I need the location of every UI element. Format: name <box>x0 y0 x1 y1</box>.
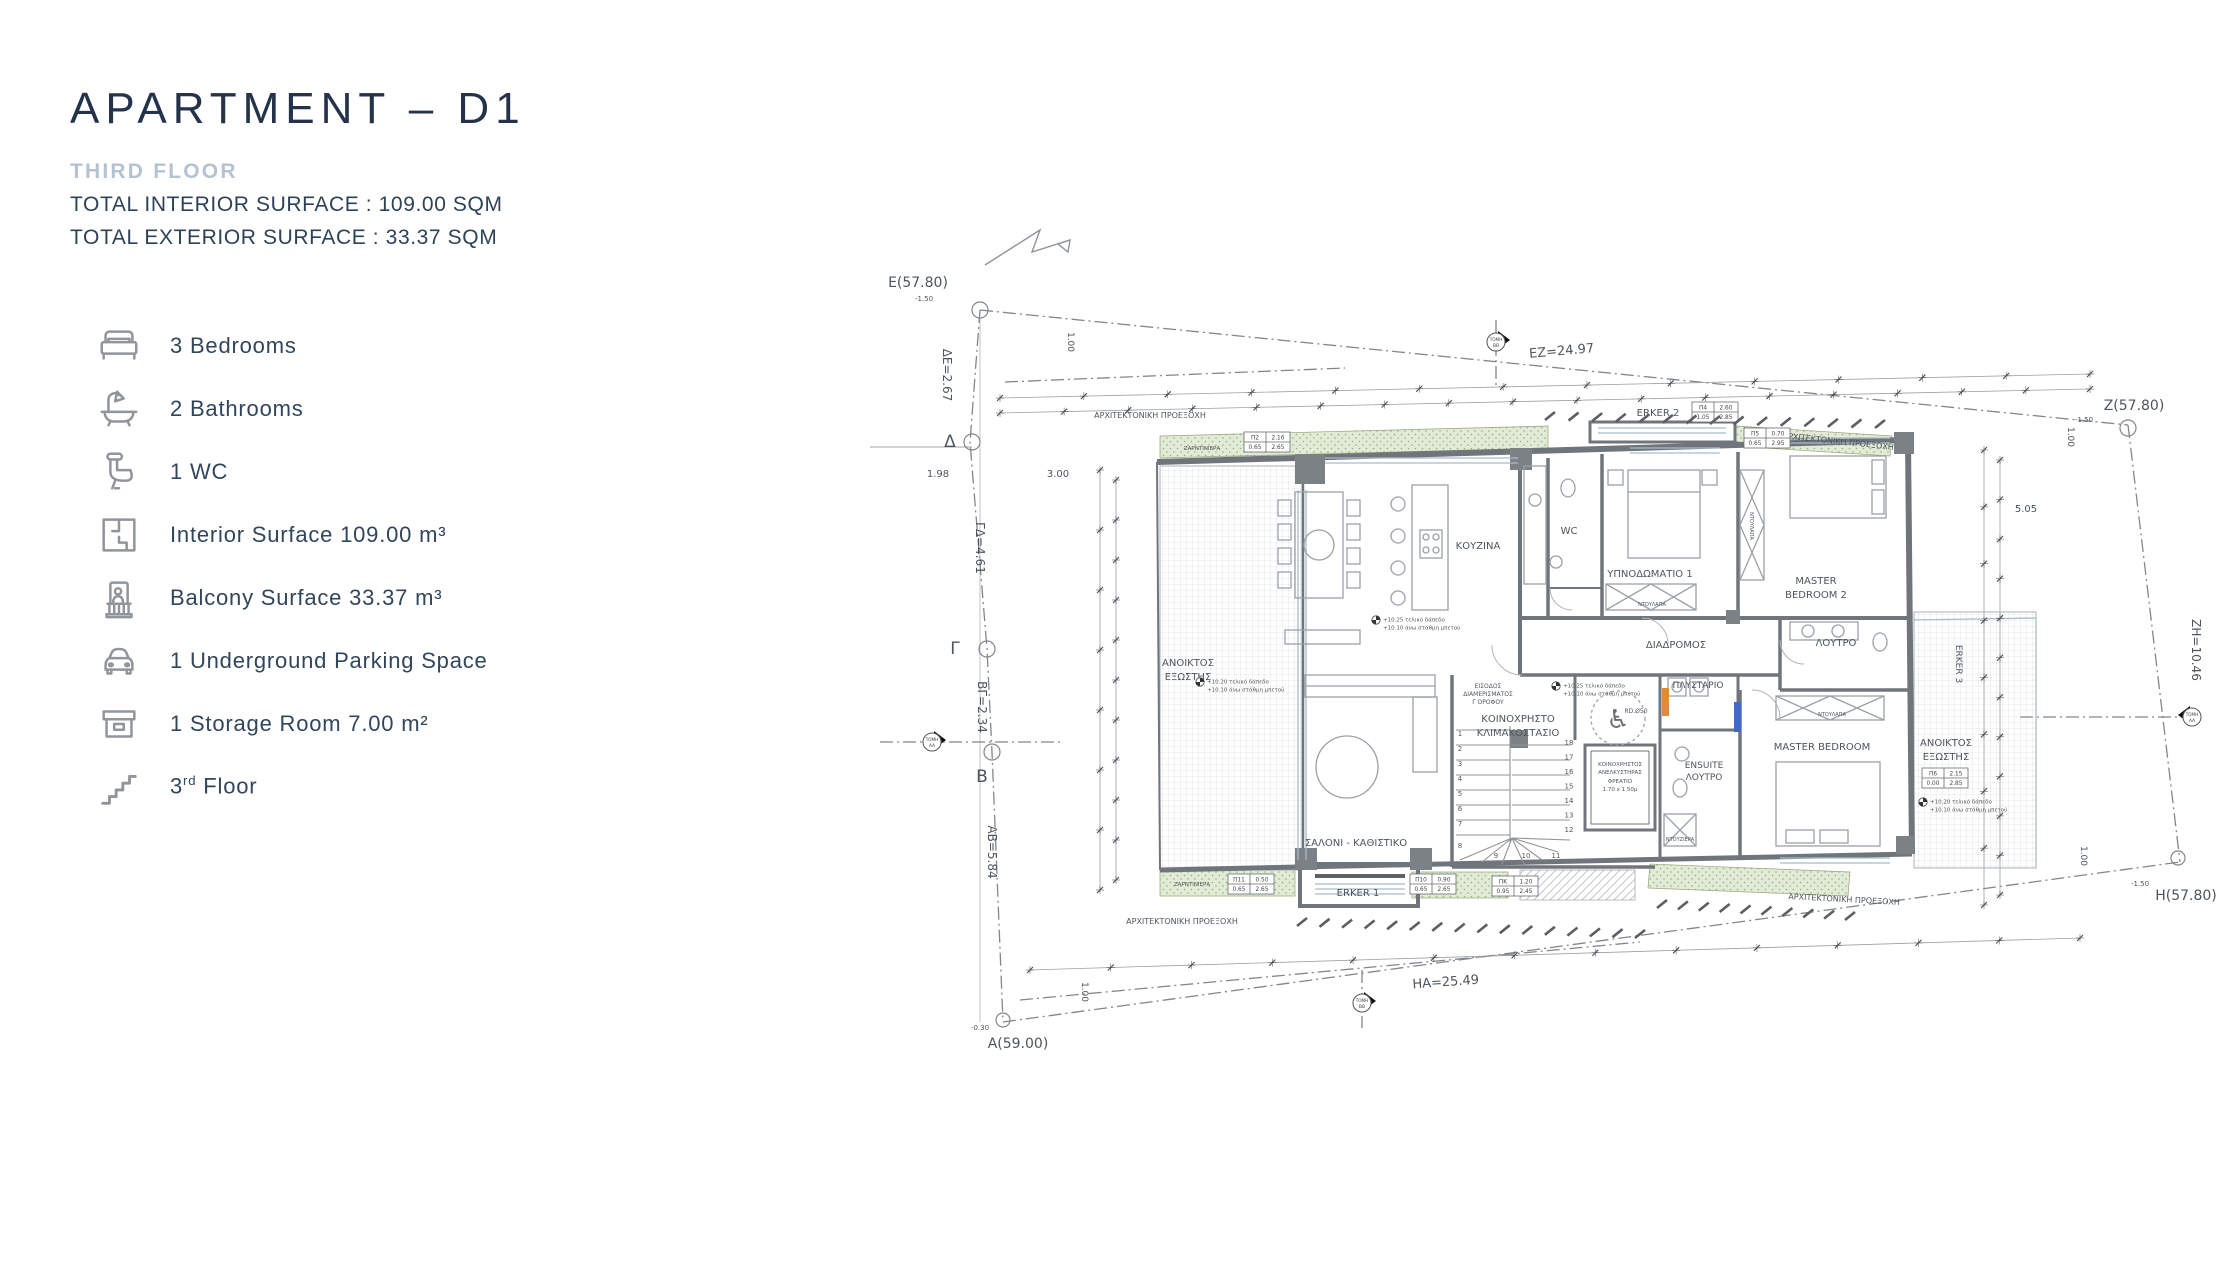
plan-label: ΦΡΕΑΤΙΟ <box>1608 779 1633 785</box>
plan-chip-value: 0.65 <box>1249 445 1262 451</box>
plan-chip-value: Π2 <box>1251 436 1259 442</box>
balcony-icon <box>96 575 142 621</box>
furniture <box>1278 456 1887 846</box>
plan-chip: Π50.700.652.95 <box>1744 428 1790 448</box>
plan-label: ΒΓ=2.34 <box>975 681 989 733</box>
section-marker: ΤΟΜΗΑΑ <box>2178 706 2201 726</box>
section-marker: ΤΟΜΗΑΑ <box>923 731 946 751</box>
stair-number: 3 <box>1458 760 1462 768</box>
feature-bathrooms: 2 Bathrooms <box>70 377 650 440</box>
plan-chip-value: Π10 <box>1415 878 1427 884</box>
plan-label: ZH=10.46 <box>2189 619 2203 681</box>
plan-label: Β <box>976 767 988 787</box>
feature-label: 3rd Floor <box>170 773 257 799</box>
plan-label: ΕΙΣΟΔΟΣ <box>1475 683 1502 690</box>
plan-chip-value: 1.20 <box>1520 880 1533 886</box>
plan-chip-value: 2.65 <box>1272 445 1285 451</box>
section-marker-text: ΒΒ <box>1359 1004 1365 1010</box>
stair-number: 9 <box>1494 852 1498 860</box>
plan-label: E(57.80) <box>888 275 948 291</box>
level-annotation: +10.25 τελικό δάπεδο+10.10 άνω στάθμη μπ… <box>1552 682 1641 698</box>
level-annotation: +10.25 τελικό δάπεδο+10.10 άνω στάθμη μπ… <box>1372 616 1461 632</box>
stair-number: 5 <box>1458 790 1462 798</box>
stair-number: 10 <box>1522 852 1531 860</box>
plan-label: ΑΡΧΙΤΕΚΤΟΝΙΚΗ ΠΡΟΕΞΟΧΗ <box>1094 411 1206 420</box>
plan-label: ΝΤΟΥΖΙΕΡΑ <box>1666 837 1695 843</box>
overhang-ticks <box>1297 918 1645 938</box>
plan-label: 1.00 <box>1065 332 1075 352</box>
level-text: +10.25 τελικό δάπεδο <box>1383 617 1445 624</box>
plan-chip-value: 0.00 <box>1927 781 1940 787</box>
plan-chip-value: 0.70 <box>1772 432 1785 438</box>
interior-surface-line: TOTAL INTERIOR SURFACE : 109.00 SQM <box>70 193 650 217</box>
feature-balcony-surface: Balcony Surface 33.37 m³ <box>70 566 650 629</box>
floor-subtitle: THIRD FLOOR <box>70 160 650 184</box>
plan-chip: Π110.500.652.65 <box>1228 874 1274 894</box>
plan-label: ΖΑΡΝΤΙΝΙΕΡΑ <box>1184 446 1220 452</box>
plan-chip-value: 2.45 <box>1520 889 1533 895</box>
plan-chip-value: 2.60 <box>1720 406 1733 412</box>
plan-label: Z(57.80) <box>2104 398 2165 414</box>
section-marker-text: ΑΑ <box>2189 718 2196 724</box>
plan-label: -1.50 <box>2131 880 2149 888</box>
plan-label: ΖΑΡΝΤΙΝΙΕΡΑ <box>1174 882 1210 888</box>
blue-accent <box>1734 702 1741 732</box>
plan-label: ΠΛΥΣΤΑΡΙΟ <box>1673 681 1724 691</box>
stair-number: 11 <box>1552 852 1561 860</box>
plan-label: ΚΟΙΝΟΧΡΗΣΤΟ <box>1481 714 1555 725</box>
exterior-surface-line: TOTAL EXTERIOR SURFACE : 33.37 SQM <box>70 226 650 250</box>
apartment-spec-page: { "header": { "title": "APARTMENT – D1",… <box>0 0 2237 1272</box>
floor-plan: E(57.80)-1.50ΔΕ=2.67Δ1.983.00ΓΔ=4.61ΓΒΓ=… <box>640 170 2237 1130</box>
plan-chip-value: Π4 <box>1699 406 1707 412</box>
plan-chip-value: 2.65 <box>1438 887 1451 893</box>
plan-chip-value: 2.85 <box>1720 415 1733 421</box>
section-marker-text: ΤΟΜΗ <box>1489 337 1503 342</box>
plan-label: ΔΕ=2.67 <box>940 349 954 402</box>
plan-chip-value: 0.65 <box>1415 887 1428 893</box>
plan-chip-value: 0.95 <box>1497 889 1510 895</box>
stair-number: 1 <box>1458 730 1462 738</box>
plan-label: ΥΠΝΟΔΩΜΑΤΙΟ 1 <box>1606 569 1692 580</box>
plan-chip: Π22.160.652.65 <box>1244 432 1290 452</box>
dimension-ticks <box>1096 466 1104 894</box>
plan-label: ΛΟΥΤΡΟ <box>1686 773 1723 783</box>
plan-chip-value: 2.95 <box>1772 441 1785 447</box>
stair-number: 12 <box>1565 826 1574 834</box>
feature-label: 1 Underground Parking Space <box>170 648 488 674</box>
feature-label: 1 Storage Room 7.00 m² <box>170 711 429 737</box>
stair-number: 8 <box>1458 842 1462 850</box>
plan-label: WC <box>1561 526 1578 537</box>
level-text: +10.10 άνω στάθμη μπετού <box>1563 691 1640 698</box>
plan-label: ERKER 3 <box>1953 645 1963 683</box>
plan-label: ENSUITE <box>1685 761 1724 771</box>
plan-label: ΓΔ=4.61 <box>973 522 987 574</box>
feature-label: 2 Bathrooms <box>170 396 304 422</box>
plan-label: -1.50 <box>2075 416 2093 424</box>
stair-number: 14 <box>1565 797 1574 805</box>
spec-panel: APARTMENT – D1 THIRD FLOOR TOTAL INTERIO… <box>70 84 650 818</box>
plan-label: BEDROOM 2 <box>1785 590 1847 601</box>
plan-chip-value: ΠΚ <box>1499 880 1507 886</box>
stair-number: 4 <box>1458 775 1463 783</box>
section-marker-text: ΒΒ <box>1493 343 1499 349</box>
storage-box-icon <box>96 701 142 747</box>
section-marker-text: ΤΟΜΗ <box>2185 712 2199 717</box>
level-text: +10.25 τελικό δάπεδο <box>1563 683 1625 690</box>
wall-blocks <box>1295 432 1914 870</box>
plan-label: ΑΝΟΙΚΤΟΣ <box>1162 658 1214 669</box>
plan-chip-value: 0.90 <box>1438 878 1451 884</box>
plan-label: ΑΡΧΙΤΕΚΤΟΝΙΚΗ ΠΡΟΕΞΟΧΗ <box>1126 917 1238 926</box>
plan-label: -0.30 <box>971 1024 989 1032</box>
plan-label: ΛΟΥΤΡΟ <box>1816 638 1857 649</box>
plan-label: HA=25.49 <box>1412 973 1480 993</box>
feature-storage: 1 Storage Room 7.00 m² <box>70 692 650 755</box>
level-text: +10.20 τελικό δάπεδο <box>1207 679 1269 686</box>
stair-number: 13 <box>1565 812 1574 820</box>
stair-number: 15 <box>1565 783 1574 791</box>
plan-label: ΣΑΛΟΝΙ - ΚΑΘΙΣΤΙΚΟ <box>1305 838 1407 849</box>
plan-label: ΚΟΙΝΟΧΡΗΣΤΟΣ <box>1598 762 1642 768</box>
plan-label: ΔΙΑΔΡΟΜΟΣ <box>1646 640 1706 651</box>
plan-label: H(57.80) <box>2155 888 2217 904</box>
stair-number: 6 <box>1458 805 1463 813</box>
plan-label: 1.70 x 1.50μ <box>1603 787 1638 793</box>
level-text: +10.10 άνω στάθμη μπετού <box>1930 807 2007 814</box>
dimension-ticks <box>1112 476 1120 884</box>
dimension-ticks <box>996 370 2094 402</box>
plan-label: ♿ <box>1606 705 1629 735</box>
plan-chip-value: 1.05 <box>1697 415 1710 421</box>
plan-label: -1.50 <box>915 295 933 303</box>
plan-label: Γ <box>950 639 960 659</box>
feature-list: 3 Bedrooms 2 Bathrooms 1 WC Interior Sur… <box>70 314 650 818</box>
feature-floor: 3rd Floor <box>70 755 650 818</box>
plan-chip-value: 2.65 <box>1256 887 1269 893</box>
plan-chip: Π62.150.002.85 <box>1922 768 1968 788</box>
plan-label: Γ ΟΡΟΦΟΥ <box>1472 699 1504 706</box>
plan-label: ΑΒ=5.84 <box>985 825 999 878</box>
dimension-ticks <box>1026 934 2084 974</box>
plan-label: 1.00 <box>2065 427 2075 447</box>
feature-label: 3 Bedrooms <box>170 333 297 359</box>
plan-chip: ΠΚ1.200.952.45 <box>1492 876 1538 896</box>
floor-plan-icon <box>96 512 142 558</box>
plan-label: 1.98 <box>927 469 949 480</box>
plan-chip-value: 0.50 <box>1256 878 1269 884</box>
plan-label: ΕΞΩΣΤΗΣ <box>1923 752 1970 763</box>
feature-label: Interior Surface 109.00 m³ <box>170 522 446 548</box>
plan-chip-value: Π6 <box>1929 772 1937 778</box>
plan-label: ERKER 2 <box>1637 408 1680 419</box>
plan-label: ΑΡΧΙΤΕΚΤΟΝΙΚΗ ΠΡΟΕΞΟΧΗ <box>1788 892 1900 907</box>
section-marker: ΤΟΜΗΒΒ <box>1487 331 1510 351</box>
plan-label: ΚΟΥΖΙΝΑ <box>1456 541 1501 552</box>
level-text: +10.10 άνω στάθμη μπετού <box>1383 625 1460 632</box>
plan-label: MASTER <box>1795 576 1836 587</box>
plan-label: ΑΝΕΛΚΥΣΤΗΡΑΣ <box>1598 770 1642 776</box>
plan-chip-value: Π11 <box>1233 878 1245 884</box>
plan-chip-value: 2.16 <box>1272 436 1285 442</box>
section-marker-text: ΤΟΜΗ <box>925 737 939 742</box>
orange-accent <box>1662 688 1669 716</box>
section-marker-text: ΤΟΜΗ <box>1355 998 1369 1003</box>
plan-label: 1.00 <box>1079 982 1089 1002</box>
plan-chip-value: Π5 <box>1751 432 1759 438</box>
stairs-icon <box>96 764 142 810</box>
plan-label: 5.05 <box>2015 504 2037 515</box>
page-title: APARTMENT – D1 <box>70 84 650 134</box>
feature-label: 1 WC <box>170 459 228 485</box>
car-icon <box>96 638 142 684</box>
plan-label: 1.00 <box>2078 846 2088 866</box>
feature-bedrooms: 3 Bedrooms <box>70 314 650 377</box>
toilet-icon <box>96 449 142 495</box>
stair-number: 7 <box>1458 820 1462 828</box>
plan-label: A(59.00) <box>988 1036 1049 1052</box>
bathtub-icon <box>96 386 142 432</box>
level-text: +10.20 τελικό δάπεδο <box>1930 799 1992 806</box>
plan-label: ΝΤΟΥΛΑΠΑ <box>1818 712 1846 718</box>
level-text: +10.10 άνω στάθμη μπετού <box>1207 687 1284 694</box>
stair-number: 2 <box>1458 745 1462 753</box>
feature-interior-surface: Interior Surface 109.00 m³ <box>70 503 650 566</box>
plan-label: ΚΛΙΜΑΚΟΣΤΑΣΙΟ <box>1477 728 1560 739</box>
bed-icon <box>96 323 142 369</box>
plan-chip-value: 0.65 <box>1749 441 1762 447</box>
stair-number: 18 <box>1565 739 1574 747</box>
section-marker: ΤΟΜΗΒΒ <box>1353 992 1376 1012</box>
plan-label: ΔΙΑΜΕΡΙΣΜΑΤΟΣ <box>1463 691 1513 698</box>
plan-label: ERKER 1 <box>1337 888 1380 899</box>
stair-number: 16 <box>1565 768 1574 776</box>
stair-number: 17 <box>1565 754 1574 762</box>
plan-chip-value: 2.15 <box>1950 772 1963 778</box>
plan-chip-value: 0.65 <box>1233 887 1246 893</box>
feature-label: Balcony Surface 33.37 m³ <box>170 585 442 611</box>
plan-chip: Π100.900.652.65 <box>1410 874 1456 894</box>
plan-label: Δ <box>944 432 956 452</box>
plan-label: ΝΤΟΥΛΑΠΑ <box>1748 512 1754 540</box>
plan-label: ΑΝΟΙΚΤΟΣ <box>1920 738 1972 749</box>
plan-label: 3.00 <box>1047 469 1069 480</box>
section-marker-text: ΑΑ <box>929 743 936 749</box>
feature-parking: 1 Underground Parking Space <box>70 629 650 692</box>
plan-chip-value: 2.85 <box>1950 781 1963 787</box>
plan-label: EZ=24.97 <box>1529 341 1595 362</box>
plan-label: MASTER BEDROOM <box>1774 742 1871 753</box>
plan-label: ΝΤΟΥΛΑΠΑ <box>1638 602 1666 608</box>
leader-arrow <box>985 230 1070 265</box>
feature-wc: 1 WC <box>70 440 650 503</box>
